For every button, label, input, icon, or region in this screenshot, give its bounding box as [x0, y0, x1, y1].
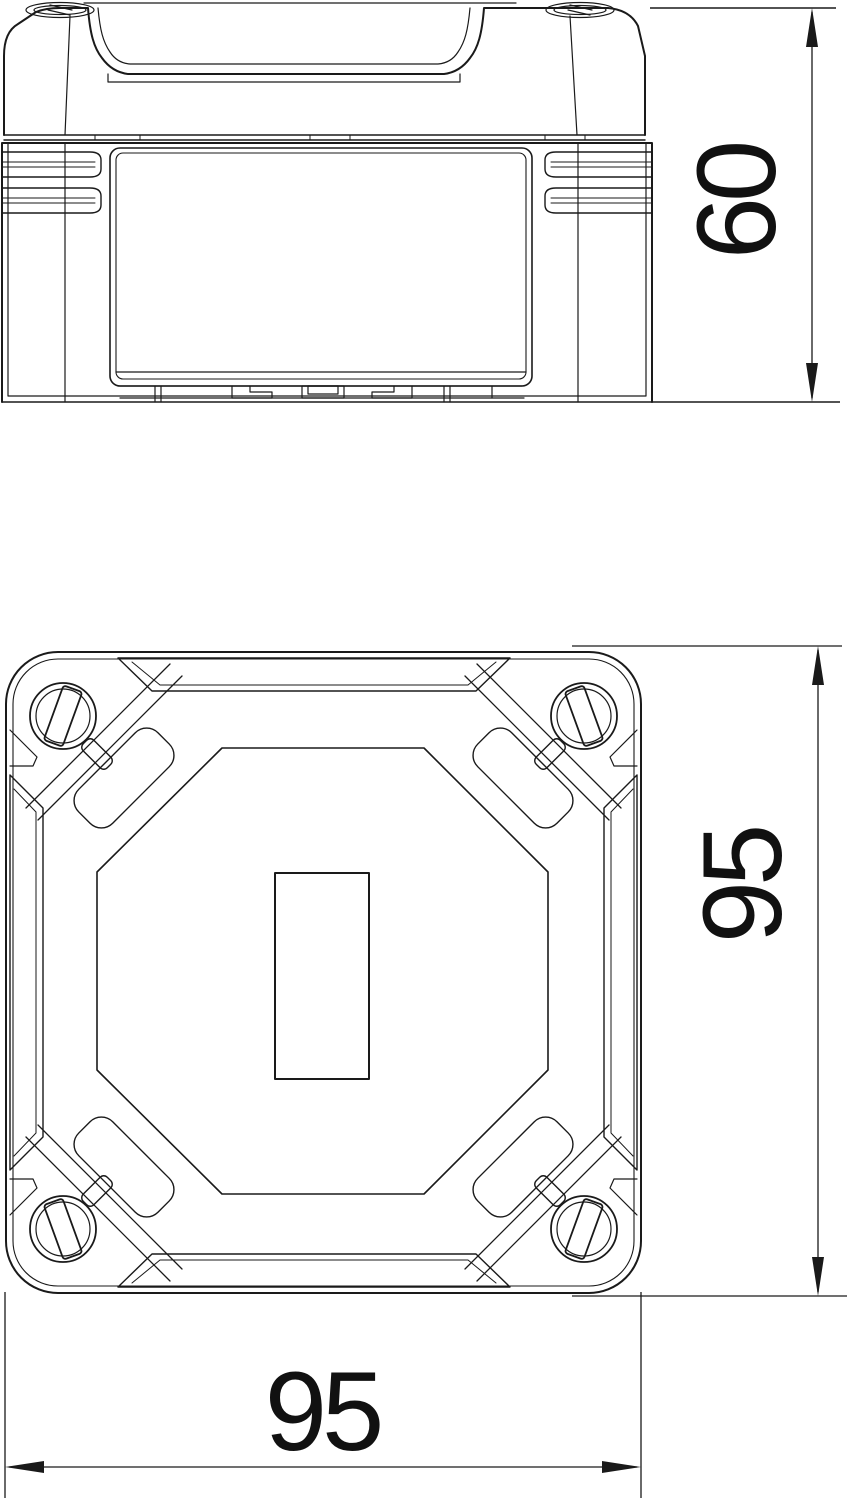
dimension-text-95-bottom: 95	[265, 1349, 380, 1474]
edge-strips	[10, 658, 637, 1287]
seam-ticks	[95, 135, 585, 140]
lid-plateau-octagon	[97, 748, 548, 1194]
body-inner-edges	[8, 143, 646, 396]
body-outline	[2, 143, 652, 402]
pad-top-right	[466, 721, 579, 834]
dimension-text-95-right: 95	[680, 828, 805, 943]
dimension-text-60: 60	[674, 144, 799, 259]
screw-top-right-side	[546, 3, 614, 18]
screw-top-left	[30, 683, 114, 771]
side-view	[2, 3, 652, 403]
dimension-drawing: 60 95 95	[0, 0, 847, 1500]
body-panel-inner	[116, 153, 526, 379]
label-window	[275, 873, 369, 1079]
lid-seam	[4, 135, 645, 140]
lid-corner-edges	[65, 16, 577, 135]
arrowhead-95r-top	[812, 646, 824, 685]
corner-chamfers	[26, 664, 621, 1281]
screw-top-right	[533, 683, 617, 771]
technical-drawing-canvas: 60 95 95	[0, 0, 847, 1500]
top-view	[6, 652, 641, 1293]
arrowhead-60-top	[806, 8, 818, 47]
arrowhead-95r-bottom	[812, 1257, 824, 1296]
arrowhead-95b-right	[602, 1461, 641, 1473]
edge-strip-end-tabs	[10, 730, 637, 1215]
bottom-clips	[120, 386, 524, 402]
pad-bottom-right	[466, 1110, 579, 1223]
body-corner-edges	[65, 143, 578, 402]
body-panel-outer	[110, 148, 532, 386]
dimension-annotations: 60 95 95	[2, 8, 847, 1498]
screw-top-left-side	[26, 3, 94, 18]
handle-recess-lip	[108, 74, 460, 82]
arrowhead-60-bottom	[806, 363, 818, 402]
screw-bottom-right	[533, 1174, 617, 1262]
right-latch-ribs	[545, 152, 652, 213]
handle-recess-inner	[98, 8, 470, 64]
arrowhead-95b-left	[5, 1461, 44, 1473]
left-latch-ribs	[2, 152, 101, 213]
pad-bottom-left	[67, 1110, 180, 1223]
extension-lines-95r	[572, 646, 847, 1296]
dimension-plan-height-95	[572, 646, 847, 1296]
pad-top-left	[67, 721, 180, 834]
screw-bottom-left	[30, 1174, 114, 1262]
